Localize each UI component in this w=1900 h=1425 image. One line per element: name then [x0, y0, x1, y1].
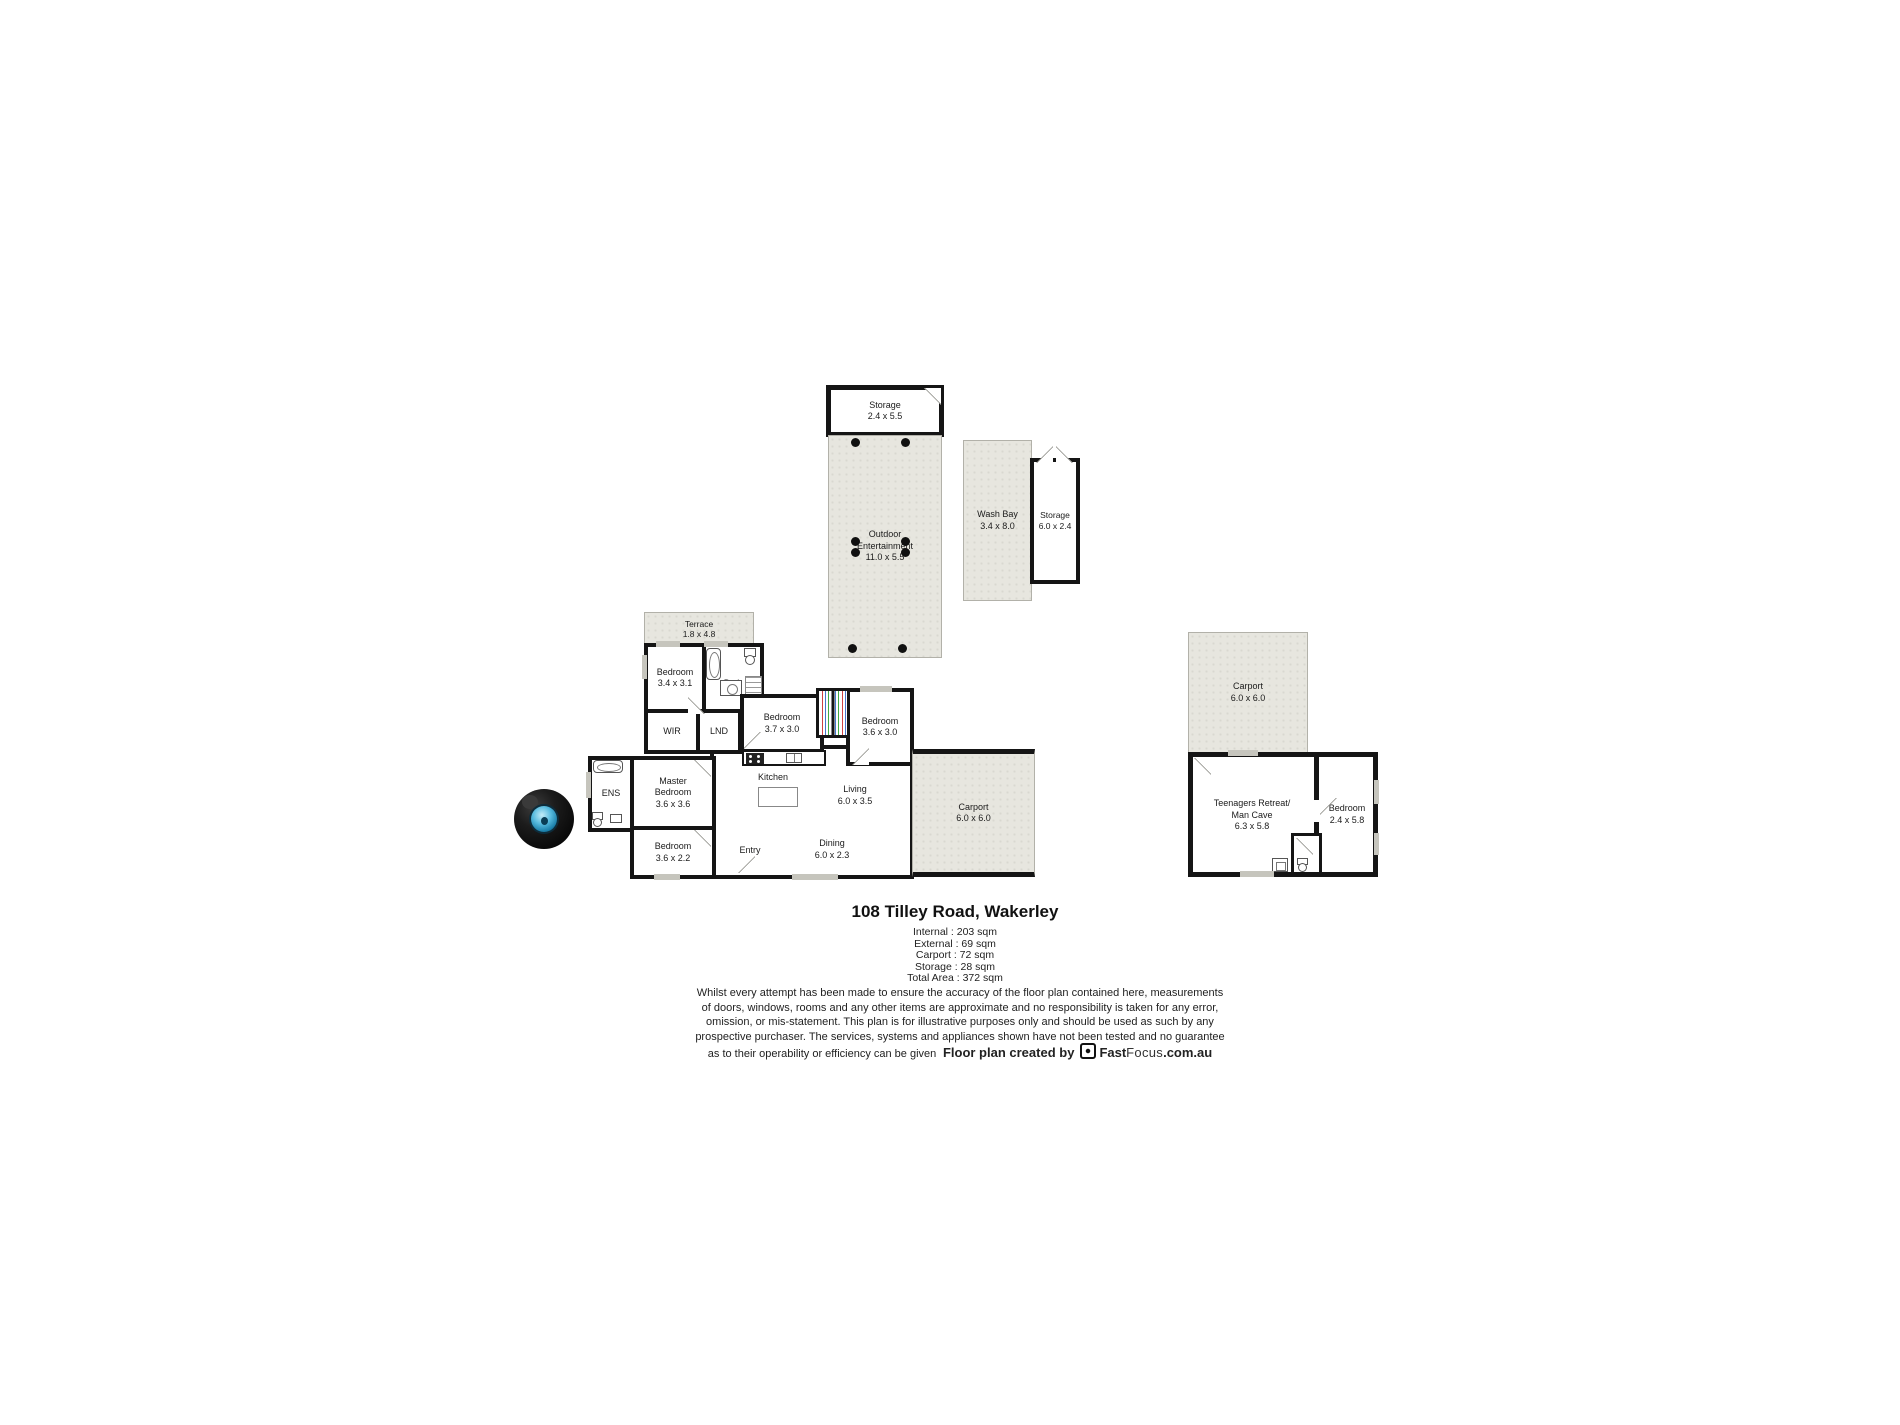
room-label: Wash Bay	[977, 509, 1018, 521]
disclaimer-line: of doors, windows, rooms and any other i…	[610, 1002, 1310, 1014]
room-label: Outdoor	[869, 529, 902, 541]
post-dot	[851, 537, 860, 546]
room-label: Terrace	[685, 619, 713, 629]
brand-text: FastFocus.com.au	[1099, 1045, 1212, 1060]
vanity-icon	[610, 814, 622, 823]
disclaimer-tail: as to their operability or efficiency ca…	[708, 1048, 936, 1060]
wardrobe-icon	[816, 688, 850, 738]
room-bedroom-3-6: Bedroom 3.6 x 3.0	[846, 688, 914, 766]
room-label: LND	[710, 726, 728, 738]
room-dims: 11.0 x 5.5	[866, 552, 905, 564]
room-label: Bedroom	[862, 716, 899, 728]
room-label: Bedroom	[655, 841, 692, 853]
room-label: Master	[659, 776, 687, 788]
post-dot	[901, 548, 910, 557]
room-label: Storage	[1040, 510, 1070, 522]
room-label: Carport	[1233, 681, 1263, 693]
room-outdoor-entertainment: Outdoor Entertainment 11.0 x 5.5	[828, 435, 942, 658]
room-dims: 6.0 x 6.0	[1231, 693, 1266, 705]
disclaimer-line: prospective purchaser. The services, sys…	[610, 1031, 1310, 1043]
post-dot	[851, 438, 860, 447]
window-segment	[1374, 833, 1379, 855]
area-line-external: External : 69 sqm	[655, 938, 1255, 950]
room-label: WIR	[663, 726, 681, 738]
room-storage-top: Storage 2.4 x 5.5	[826, 385, 944, 437]
room-wash-bay: Wash Bay 3.4 x 8.0	[963, 440, 1032, 601]
window-segment	[860, 686, 892, 692]
room-dims: 2.4 x 5.5	[868, 411, 903, 423]
stove-icon	[746, 753, 764, 764]
room-dims: 3.6 x 3.0	[863, 727, 898, 739]
lens-pupil	[541, 817, 548, 825]
post-dot	[851, 548, 860, 557]
area-line-carport: Carport : 72 sqm	[655, 949, 1255, 961]
window-segment	[792, 874, 838, 880]
room-dims: 3.6 x 2.2	[656, 853, 691, 865]
room-dims: 3.4 x 8.0	[980, 521, 1015, 533]
room-bedroom-3-4: Bedroom 3.4 x 3.1	[644, 643, 706, 713]
camera-sphere-logo	[514, 789, 574, 849]
credit-line: as to their operability or efficiency ca…	[610, 1043, 1310, 1060]
room-lnd: LND	[696, 709, 742, 754]
label-living: Living 6.0 x 3.5	[825, 784, 885, 807]
area-line-storage: Storage : 28 sqm	[655, 961, 1255, 973]
post-dot	[898, 644, 907, 653]
disclaimer-line: omission, or mis-statement. This plan is…	[610, 1016, 1310, 1028]
window-segment	[1240, 871, 1274, 877]
window-segment	[1228, 750, 1258, 756]
room-label: Storage	[869, 400, 901, 412]
room-wir: WIR	[644, 709, 700, 754]
page-title: 108 Tilley Road, Wakerley	[655, 902, 1255, 922]
window-segment	[654, 874, 680, 880]
floor-plan-canvas: Storage 2.4 x 5.5 Outdoor Entertainment …	[0, 0, 1900, 1425]
label-entry: Entry	[725, 845, 775, 857]
room-storage-shed: Storage 6.0 x 2.4	[1030, 458, 1080, 584]
credit-prefix: Floor plan created by	[939, 1045, 1074, 1060]
toilet-icon	[1298, 863, 1307, 872]
disclaimer-line: Whilst every attempt has been made to en…	[610, 987, 1310, 999]
room-dims: 3.7 x 3.0	[765, 724, 800, 736]
label-dining: Dining 6.0 x 2.3	[802, 838, 862, 861]
window-segment	[642, 655, 647, 679]
post-dot	[901, 438, 910, 447]
sphere-highlight	[522, 795, 538, 809]
room-dims: 3.6 x 3.6	[656, 799, 691, 811]
post-dot	[848, 644, 857, 653]
room-label: Carport	[958, 802, 988, 814]
bathtub-icon	[593, 760, 623, 773]
room-label: Bedroom	[655, 787, 692, 799]
fastfocus-logo-icon	[1080, 1043, 1096, 1059]
door-swing	[1056, 446, 1073, 463]
room-label: Bedroom	[764, 712, 801, 724]
carport-house: Carport 6.0 x 6.0	[912, 749, 1035, 877]
window-segment	[704, 641, 728, 647]
room-dims: 6.0 x 2.4	[1039, 521, 1072, 533]
window-segment	[656, 641, 680, 647]
room-bedroom-3-7: Bedroom 3.7 x 3.0	[740, 694, 824, 753]
room-retreat: Teenagers Retreat/ Man Cave 6.3 x 5.8	[1196, 798, 1308, 833]
label-kitchen: Kitchen	[743, 772, 803, 784]
room-dims: 6.0 x 6.0	[956, 813, 991, 825]
room-label: ENS	[602, 788, 621, 800]
kitchen-island	[758, 787, 798, 807]
room-label: Bedroom	[657, 667, 694, 679]
toilet-icon	[593, 818, 602, 827]
window-segment	[1374, 780, 1379, 804]
bathtub-icon	[706, 648, 721, 680]
vanity-icon	[720, 680, 742, 696]
carport-shed: Carport 6.0 x 6.0	[1188, 632, 1308, 753]
post-dot	[901, 537, 910, 546]
area-line-total: Total Area : 372 sqm	[655, 972, 1255, 984]
door-swing	[1036, 446, 1053, 463]
area-line-internal: Internal : 203 sqm	[655, 926, 1255, 938]
room-dims: 1.8 x 4.8	[683, 629, 716, 639]
window-segment	[586, 772, 591, 798]
sink-icon	[786, 753, 802, 763]
vanity-icon	[1272, 858, 1288, 872]
interior-wall	[1314, 755, 1319, 800]
camera-lens-icon	[531, 806, 557, 832]
toilet-icon	[745, 655, 755, 665]
room-dims: 3.4 x 3.1	[658, 678, 693, 690]
